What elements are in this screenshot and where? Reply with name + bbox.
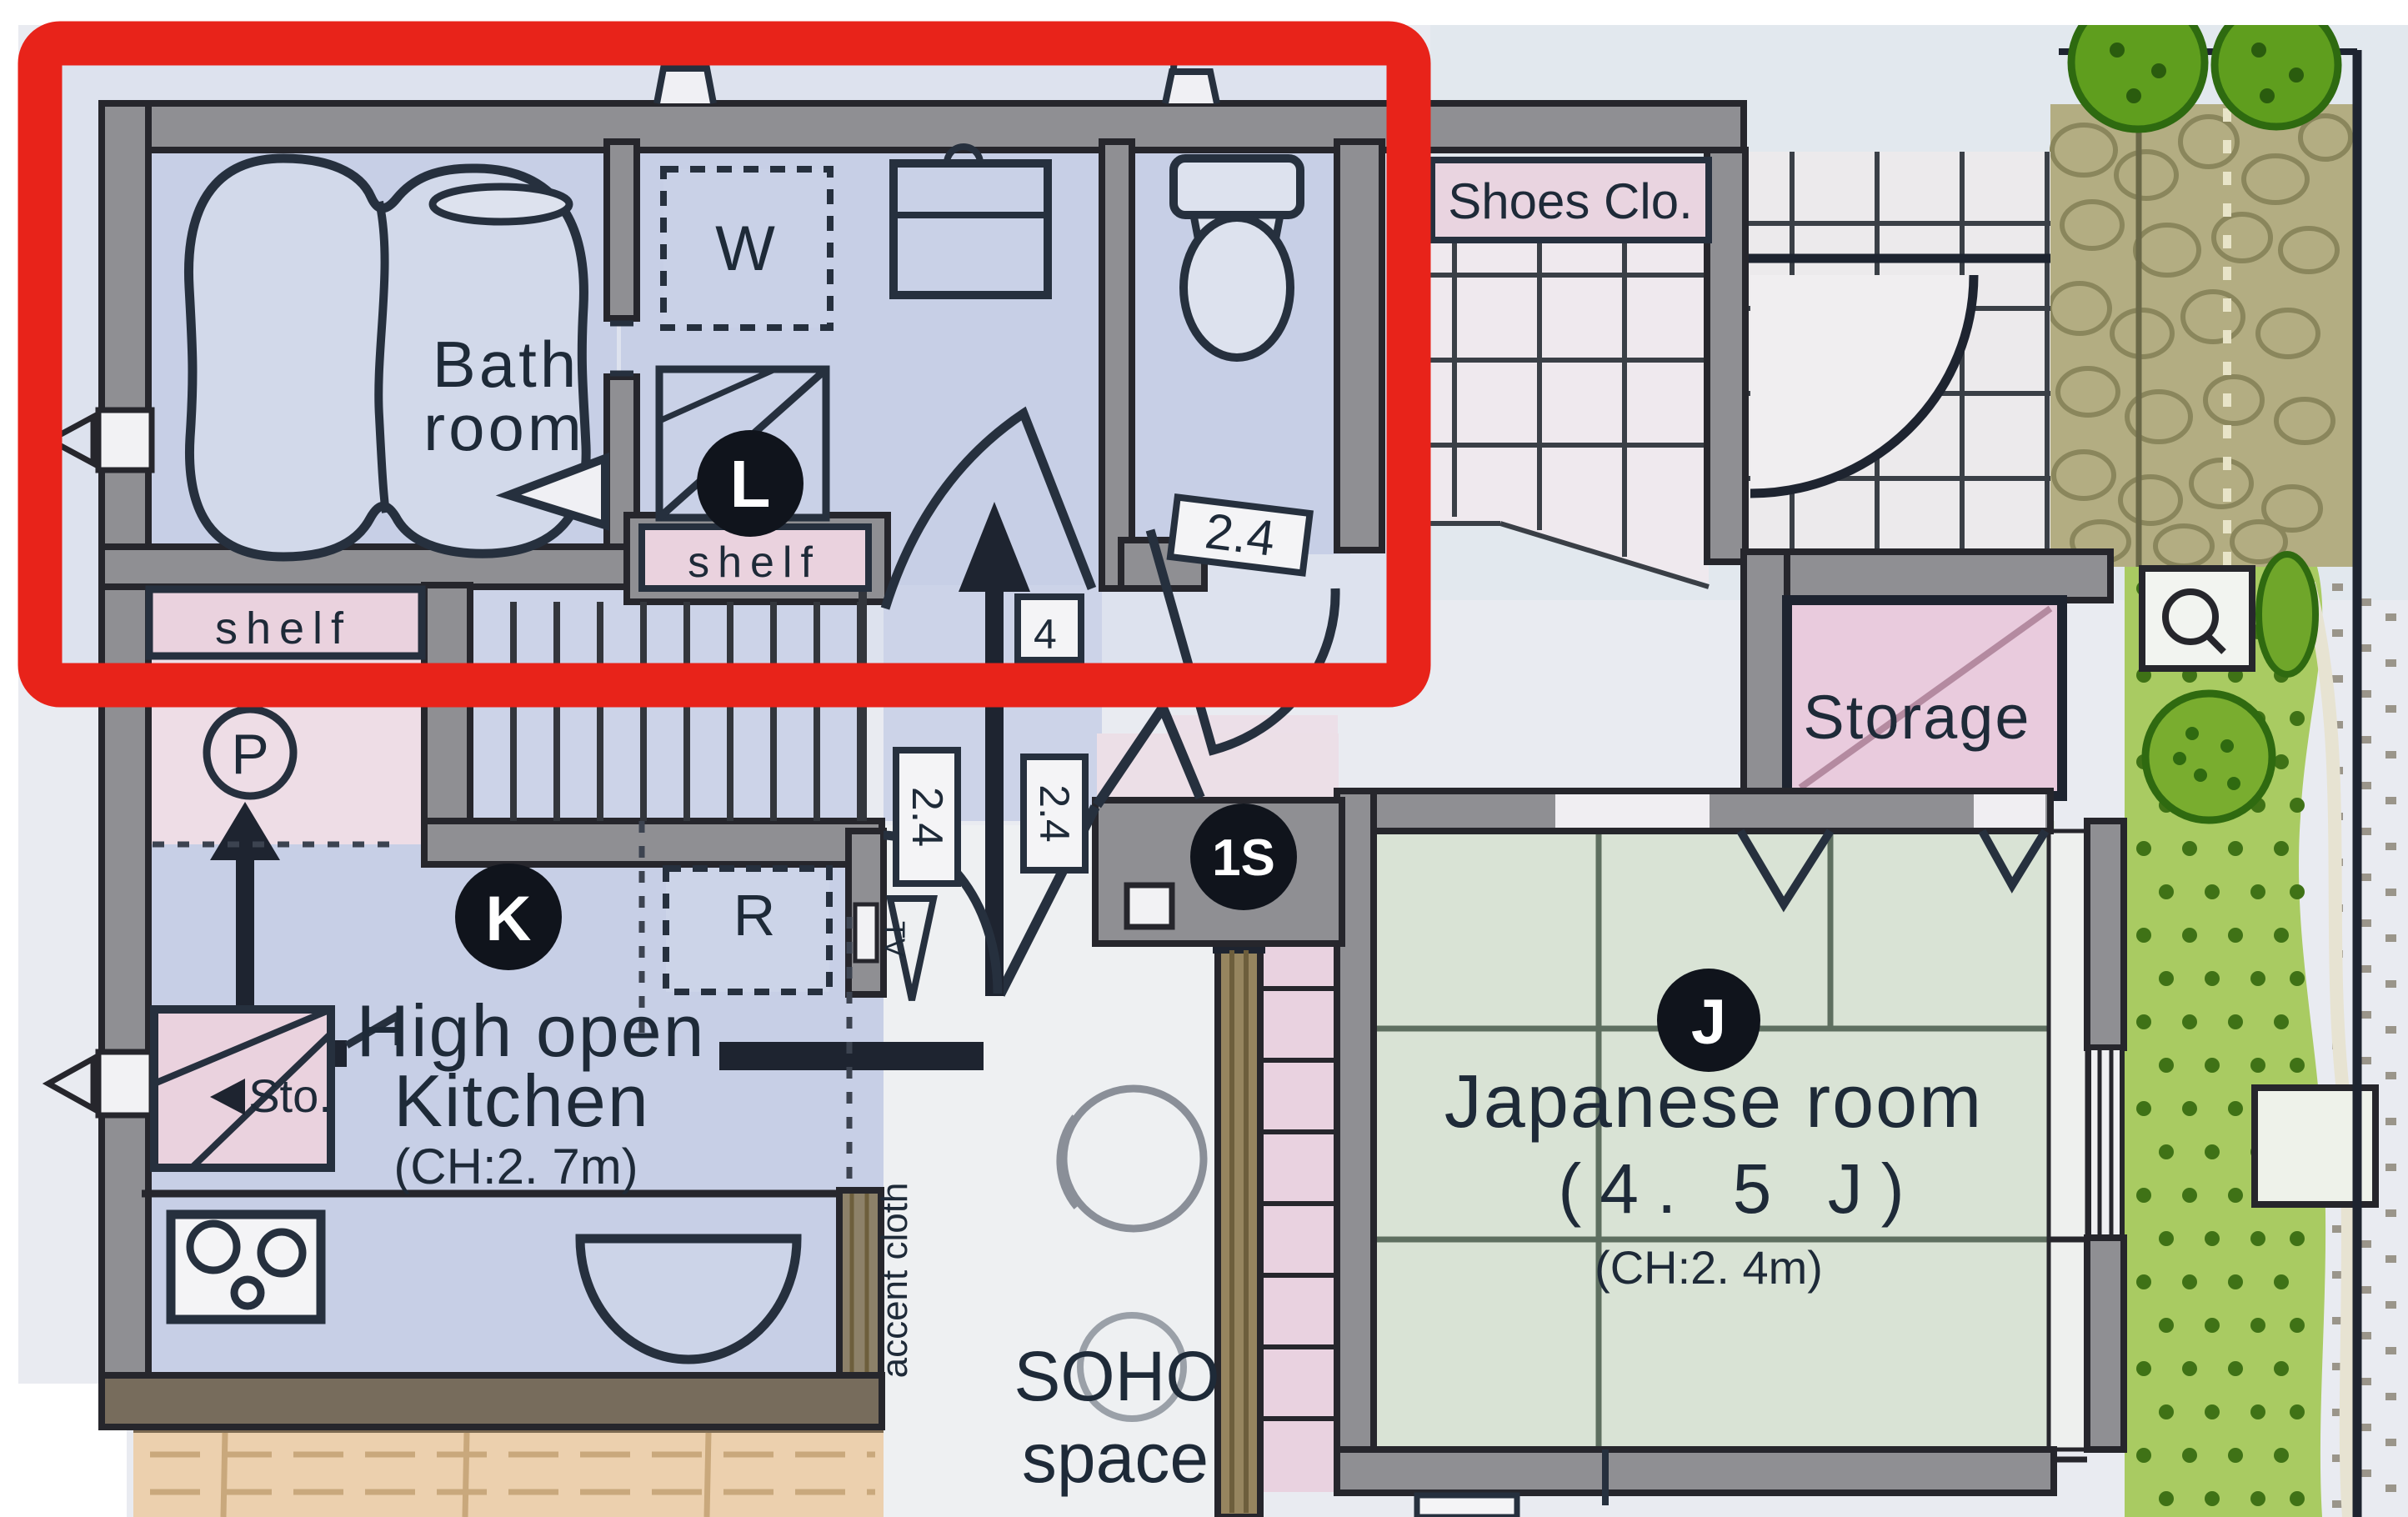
svg-text:Bath: Bath <box>433 328 579 401</box>
svg-text:accent cloth: accent cloth <box>874 1183 915 1379</box>
svg-text:J: J <box>1691 987 1726 1058</box>
svg-text:L: L <box>730 447 771 521</box>
svg-text:4: 4 <box>1034 611 1057 658</box>
svg-text:Shoes Clo.: Shoes Clo. <box>1448 173 1693 229</box>
svg-text:2.4: 2.4 <box>1202 503 1278 567</box>
svg-text:shelf: shelf <box>688 538 821 587</box>
svg-text:Japanese room: Japanese room <box>1444 1060 1983 1144</box>
svg-text:room: room <box>423 391 585 464</box>
svg-text:space: space <box>1022 1419 1209 1497</box>
svg-text:Sto.: Sto. <box>248 1069 332 1122</box>
svg-text:K: K <box>486 884 532 954</box>
svg-text:2.4: 2.4 <box>903 787 951 847</box>
svg-text:TV: TV <box>879 921 910 958</box>
svg-text:R: R <box>733 883 776 948</box>
svg-text:(4. 5 J): (4. 5 J) <box>1558 1149 1922 1228</box>
svg-text:2.4: 2.4 <box>1031 784 1078 843</box>
svg-text:Kitchen: Kitchen <box>393 1059 650 1142</box>
svg-text:1S: 1S <box>1212 829 1275 887</box>
svg-text:Storage: Storage <box>1803 683 2030 752</box>
svg-text:SOHO: SOHO <box>1014 1337 1219 1415</box>
svg-text:(CH:2. 4m): (CH:2. 4m) <box>1594 1241 1823 1294</box>
svg-text:W: W <box>715 213 775 284</box>
svg-text:(CH:2. 7m): (CH:2. 7m) <box>393 1139 638 1194</box>
svg-text:shelf: shelf <box>215 603 352 653</box>
svg-text:P: P <box>231 723 268 786</box>
